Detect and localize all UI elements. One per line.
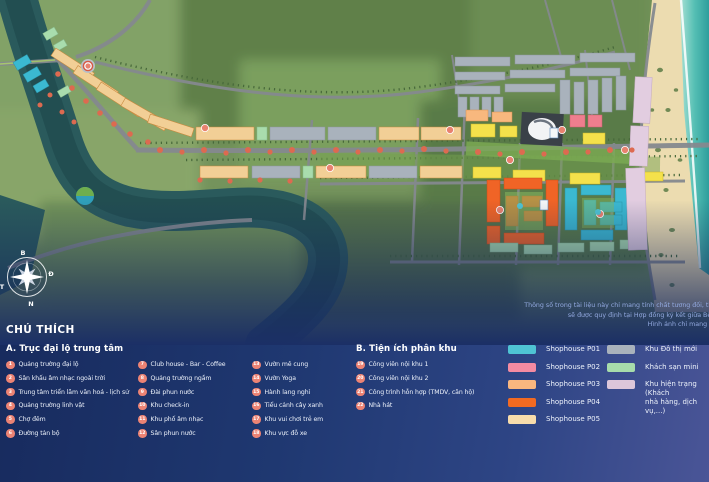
legend-title: CHÚ THÍCH (6, 324, 75, 336)
legend-item-number-badge: 14 (252, 374, 261, 383)
legend-item-label: Vườn Yoga (265, 375, 296, 382)
legend-item-number-badge: 6 (6, 429, 15, 438)
legend-item-label: Hành lang nghỉ (265, 389, 311, 396)
legend-item-label: Club house - Bar - Coffee (151, 361, 226, 368)
swatch-label: Shophouse P04 (546, 398, 600, 407)
legend-item: 20 Công viên nội khu 2 (356, 372, 474, 386)
legend-item-number-badge: 9 (138, 388, 147, 397)
disclaimer-text: Thông số trong tài liệu này chỉ mang tín… (201, 301, 709, 330)
swatch-label: Khách sạn mini (645, 363, 699, 372)
svg-text:Đ: Đ (48, 270, 54, 278)
section-a-title: A. Trục đại lộ trung tâm (6, 344, 123, 354)
swatch-column-zones: Khu Đô thị mới Khách sạn mini Khu hiện t… (607, 345, 709, 389)
legend-item: 15 Hành lang nghỉ (252, 385, 364, 399)
legend-item-label: Đường tản bộ (19, 430, 60, 437)
legend-item-number-badge: 13 (252, 361, 261, 370)
swatch-row: Shophouse P04 (508, 398, 600, 407)
legend-item-label: Quảng trường linh vật (19, 402, 85, 409)
svg-text:T: T (0, 283, 5, 291)
swatch-label: Shophouse P05 (546, 415, 600, 424)
legend-item-label: Sân phun nước (151, 430, 196, 437)
legend-item-label: Quảng trường ngầm (151, 375, 212, 382)
legend-item: 19 Công viên nội khu 1 (356, 358, 474, 372)
legend-item-number-badge: 10 (138, 402, 147, 411)
legend-item-label: Vườn mê cung (265, 361, 309, 368)
legend-item: 8 Quảng trường ngầm (138, 372, 252, 386)
legend-item-number-badge: 20 (356, 374, 365, 383)
masterplan-page: { "map": { "compass": {"north": "B", "ea… (0, 0, 709, 482)
swatch-row: Shophouse P02 (508, 363, 600, 372)
legend-item-label: Khu vực đỗ xe (265, 430, 307, 437)
legend-item-number-badge: 19 (356, 361, 365, 370)
legend-item-number-badge: 12 (138, 429, 147, 438)
disclaimer-line: sẽ được quy định tại Hợp đồng ký kết giữ… (201, 311, 709, 321)
legend-item-label: Quảng trường đại lộ (19, 361, 79, 368)
legend-item: 21 Công trình hỗn hợp (TMDV, căn hộ) (356, 385, 474, 399)
legend-item-label: Công viên nội khu 2 (369, 375, 429, 382)
legend-item-label: Khu vui chơi trẻ em (265, 416, 324, 423)
legend-item-label: Khu check-in (151, 402, 190, 409)
swatch-row: Shophouse P01 (508, 345, 600, 354)
legend-item: 1 Quảng trường đại lộ (6, 358, 138, 372)
legend-item-label: Chợ đêm (19, 416, 46, 423)
swatch-row: Shophouse P03 (508, 380, 600, 389)
legend-item: 10 Khu check-in (138, 399, 252, 413)
legend-item-label: Khu phố âm nhạc (151, 416, 204, 423)
legend-item-number-badge: 5 (6, 415, 15, 424)
disclaimer-line: Thông số trong tài liệu này chỉ mang tín… (201, 301, 709, 311)
legend-item: 13 Vườn mê cung (252, 358, 364, 372)
color-swatch (607, 363, 635, 372)
section-a-items: 1 Quảng trường đại lộ 2 Sân khấu âm nhạc… (6, 358, 364, 440)
legend-item-label: Đài phun nước (151, 389, 195, 396)
legend-item: 12 Sân phun nước (138, 426, 252, 440)
legend-item: 3 Trung tâm triển lãm văn hoá - lịch sử (6, 385, 138, 399)
legend-item: 22 Nhà hát (356, 399, 474, 413)
color-swatch (607, 345, 635, 354)
legend-item-number-badge: 1 (6, 361, 15, 370)
legend-item-number-badge: 11 (138, 415, 147, 424)
disclaimer-line: Hình ảnh chỉ mang tính chất minh h (201, 320, 709, 330)
color-swatch (508, 380, 536, 389)
swatch-row: Shophouse P05 (508, 415, 600, 424)
swatch-label: Shophouse P02 (546, 363, 600, 372)
legend-item-number-badge: 8 (138, 374, 147, 383)
legend-item: 14 Vườn Yoga (252, 372, 364, 386)
boulevard-row-north (196, 127, 461, 140)
swatch-label: Khu Đô thị mới (645, 345, 697, 354)
legend-item-number-badge: 21 (356, 388, 365, 397)
color-swatch (508, 415, 536, 424)
legend-item-number-badge: 2 (6, 374, 15, 383)
legend-item-label: Sân khấu âm nhạc ngoài trời (19, 375, 105, 382)
legend-item-label: Công viên nội khu 1 (369, 361, 429, 368)
legend-item: 9 Đài phun nước (138, 385, 252, 399)
legend-item-label: Tiểu cảnh cây xanh (265, 402, 323, 409)
swatch-label: Khu hiện trạng (Khách nhà hàng, dịch vụ,… (645, 380, 709, 416)
legend-item: 5 Chợ đêm (6, 413, 138, 427)
legend-item: 4 Quảng trường linh vật (6, 399, 138, 413)
legend-item-number-badge: 7 (138, 361, 147, 370)
color-swatch (508, 363, 536, 372)
legend-item-number-badge: 3 (6, 388, 15, 397)
legend-item-label: Trung tâm triển lãm văn hoá - lịch sử (19, 389, 129, 396)
section-b-title: B. Tiện ích phân khu (356, 344, 457, 354)
legend-item-number-badge: 4 (6, 402, 15, 411)
svg-text:N: N (28, 300, 33, 308)
swatch-row: Khu Đô thị mới (607, 345, 709, 354)
color-swatch (508, 345, 536, 354)
legend-item: 7 Club house - Bar - Coffee (138, 358, 252, 372)
swatch-label: Shophouse P03 (546, 380, 600, 389)
swatch-row: Khách sạn mini (607, 363, 709, 372)
legend-item: 2 Sân khấu âm nhạc ngoài trời (6, 372, 138, 386)
legend-item-label: Công trình hỗn hợp (TMDV, căn hộ) (369, 389, 475, 396)
legend-item: 16 Tiểu cảnh cây xanh (252, 399, 364, 413)
legend-item-number-badge: 22 (356, 402, 365, 411)
legend-item: 6 Đường tản bộ (6, 426, 138, 440)
legend-item-number-badge: 16 (252, 402, 261, 411)
legend-item: 18 Khu vực đỗ xe (252, 426, 364, 440)
color-swatch (607, 380, 635, 389)
legend-item-number-badge: 15 (252, 388, 261, 397)
legend-item: 17 Khu vui chơi trẻ em (252, 413, 364, 427)
swatch-column-shophouse: Shophouse P01 Shophouse P02 Shophouse P0… (508, 345, 600, 424)
color-swatch (508, 398, 536, 407)
section-b-items: 19 Công viên nội khu 1 20 Công viên nội … (356, 358, 474, 413)
legend-item-number-badge: 17 (252, 415, 261, 424)
legend-item-number-badge: 18 (252, 429, 261, 438)
legend-item-label: Nhà hát (369, 402, 393, 409)
svg-text:B: B (21, 249, 26, 257)
masterplan-map: B Đ T N (0, 0, 709, 345)
swatch-label: Shophouse P01 (546, 345, 600, 354)
legend-item: 11 Khu phố âm nhạc (138, 413, 252, 427)
swatch-row: Khu hiện trạng (Khách nhà hàng, dịch vụ,… (607, 380, 709, 389)
